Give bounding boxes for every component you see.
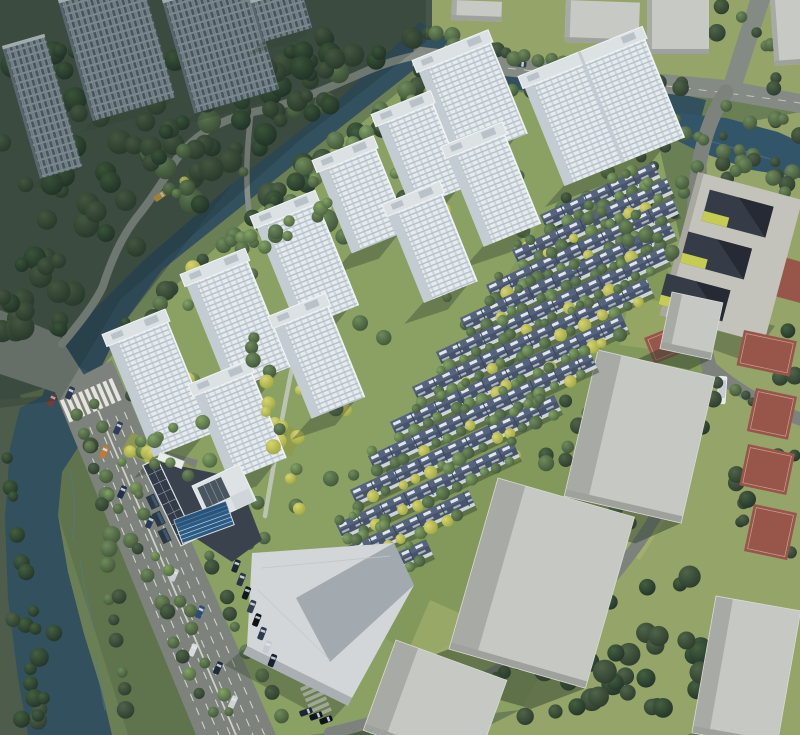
tree <box>132 543 144 555</box>
tree <box>285 473 296 484</box>
tree <box>672 80 689 97</box>
tree <box>352 315 368 331</box>
tree <box>194 688 205 699</box>
tree <box>208 707 219 718</box>
tree <box>30 648 49 667</box>
tree <box>99 469 113 483</box>
tree <box>108 614 119 625</box>
tree <box>781 323 796 338</box>
tree <box>287 173 306 192</box>
tree <box>9 527 25 543</box>
tree <box>619 220 634 235</box>
tree <box>109 633 124 648</box>
tree <box>518 49 531 62</box>
tree <box>559 395 572 408</box>
tree <box>652 232 663 243</box>
tree <box>274 423 286 435</box>
tree <box>84 441 96 453</box>
tree <box>258 240 271 253</box>
tree <box>588 687 609 708</box>
tree <box>532 54 545 67</box>
tree <box>100 557 116 573</box>
tree <box>596 207 607 218</box>
tree <box>220 590 235 605</box>
context-slab <box>451 0 502 22</box>
tree <box>117 701 135 719</box>
tree <box>151 552 161 562</box>
tree <box>716 144 731 159</box>
tree <box>665 245 680 260</box>
tree <box>738 515 749 526</box>
tree <box>29 623 41 635</box>
tree <box>165 457 175 467</box>
tree <box>160 604 176 620</box>
tree <box>348 470 359 481</box>
tree <box>561 192 572 203</box>
tree <box>117 457 126 466</box>
tree <box>23 676 38 691</box>
tree <box>548 704 562 718</box>
tree <box>637 669 656 688</box>
context-slab <box>770 0 800 66</box>
tree <box>691 160 704 173</box>
tree <box>245 341 258 354</box>
tree <box>323 471 339 487</box>
tree <box>261 407 271 417</box>
tree <box>730 165 742 177</box>
tree <box>2 452 13 463</box>
tree <box>224 707 233 716</box>
tree <box>230 622 240 632</box>
tree <box>217 688 231 702</box>
tree <box>89 399 100 410</box>
tree <box>167 636 179 648</box>
tree <box>639 579 656 596</box>
tree <box>204 551 214 561</box>
tree <box>582 212 595 225</box>
tree <box>559 453 573 467</box>
tree <box>185 622 199 636</box>
tree <box>246 353 261 368</box>
tree <box>653 698 673 718</box>
tree <box>584 200 594 210</box>
tree <box>282 231 292 241</box>
tree <box>266 439 281 454</box>
tree <box>719 132 728 141</box>
aerial-rendering <box>0 0 800 735</box>
tree <box>765 170 781 186</box>
tree <box>182 299 194 311</box>
tree <box>134 490 143 499</box>
tree <box>168 423 178 433</box>
tree <box>223 607 237 621</box>
tree <box>274 709 289 724</box>
tree <box>137 508 150 521</box>
tree <box>538 455 554 471</box>
tree <box>743 115 757 129</box>
tree <box>18 564 35 581</box>
tree <box>199 658 210 669</box>
tree <box>708 24 726 42</box>
tree <box>751 27 762 38</box>
tree <box>88 463 100 475</box>
tree <box>183 667 196 680</box>
tree <box>677 632 695 650</box>
tree <box>739 491 756 508</box>
tree <box>268 224 283 239</box>
tree <box>293 503 305 515</box>
tree <box>182 470 194 482</box>
tree <box>202 453 217 468</box>
sports-court <box>747 388 797 440</box>
tree <box>736 11 747 22</box>
tree <box>648 626 668 646</box>
tree <box>96 421 109 434</box>
tree <box>322 198 333 209</box>
tree <box>283 215 294 226</box>
tree <box>638 228 653 243</box>
tree <box>517 708 534 725</box>
tree <box>593 660 617 684</box>
tree <box>429 26 444 41</box>
tree <box>734 144 745 155</box>
tree <box>38 692 50 704</box>
tree <box>184 604 197 617</box>
tree <box>260 375 274 389</box>
tree <box>176 650 190 664</box>
tree <box>766 81 781 96</box>
tree <box>174 595 187 608</box>
tree <box>376 330 391 345</box>
tree <box>13 711 30 728</box>
tree <box>204 559 219 574</box>
tree <box>195 415 210 430</box>
aerial-rendering-figure: Aerial rendering of a riverside resident… <box>0 0 800 735</box>
tree <box>112 589 127 604</box>
tree <box>113 504 123 514</box>
tree <box>778 114 789 125</box>
tree <box>71 408 83 420</box>
tree <box>675 175 689 189</box>
context-slab <box>647 0 709 54</box>
tree <box>290 463 302 475</box>
tree <box>568 698 585 715</box>
tree <box>243 229 258 244</box>
tree <box>621 234 635 248</box>
tree <box>607 644 624 661</box>
tree <box>32 709 44 721</box>
tree <box>770 157 780 167</box>
tree <box>149 459 160 470</box>
tree <box>140 569 154 583</box>
tree <box>8 491 18 501</box>
tree <box>147 433 162 448</box>
tree <box>562 441 575 454</box>
tree <box>720 100 732 112</box>
tree <box>729 384 741 396</box>
tree <box>327 132 345 150</box>
tree <box>698 134 709 145</box>
tree <box>118 682 131 695</box>
tree <box>308 176 319 187</box>
tree <box>28 605 39 616</box>
tree <box>117 667 128 678</box>
tree <box>224 235 237 248</box>
tree <box>104 489 115 500</box>
tree <box>78 428 90 440</box>
tree <box>679 566 701 588</box>
tree <box>5 612 20 627</box>
tree <box>163 565 175 577</box>
tree <box>46 625 63 642</box>
tree <box>100 540 117 557</box>
